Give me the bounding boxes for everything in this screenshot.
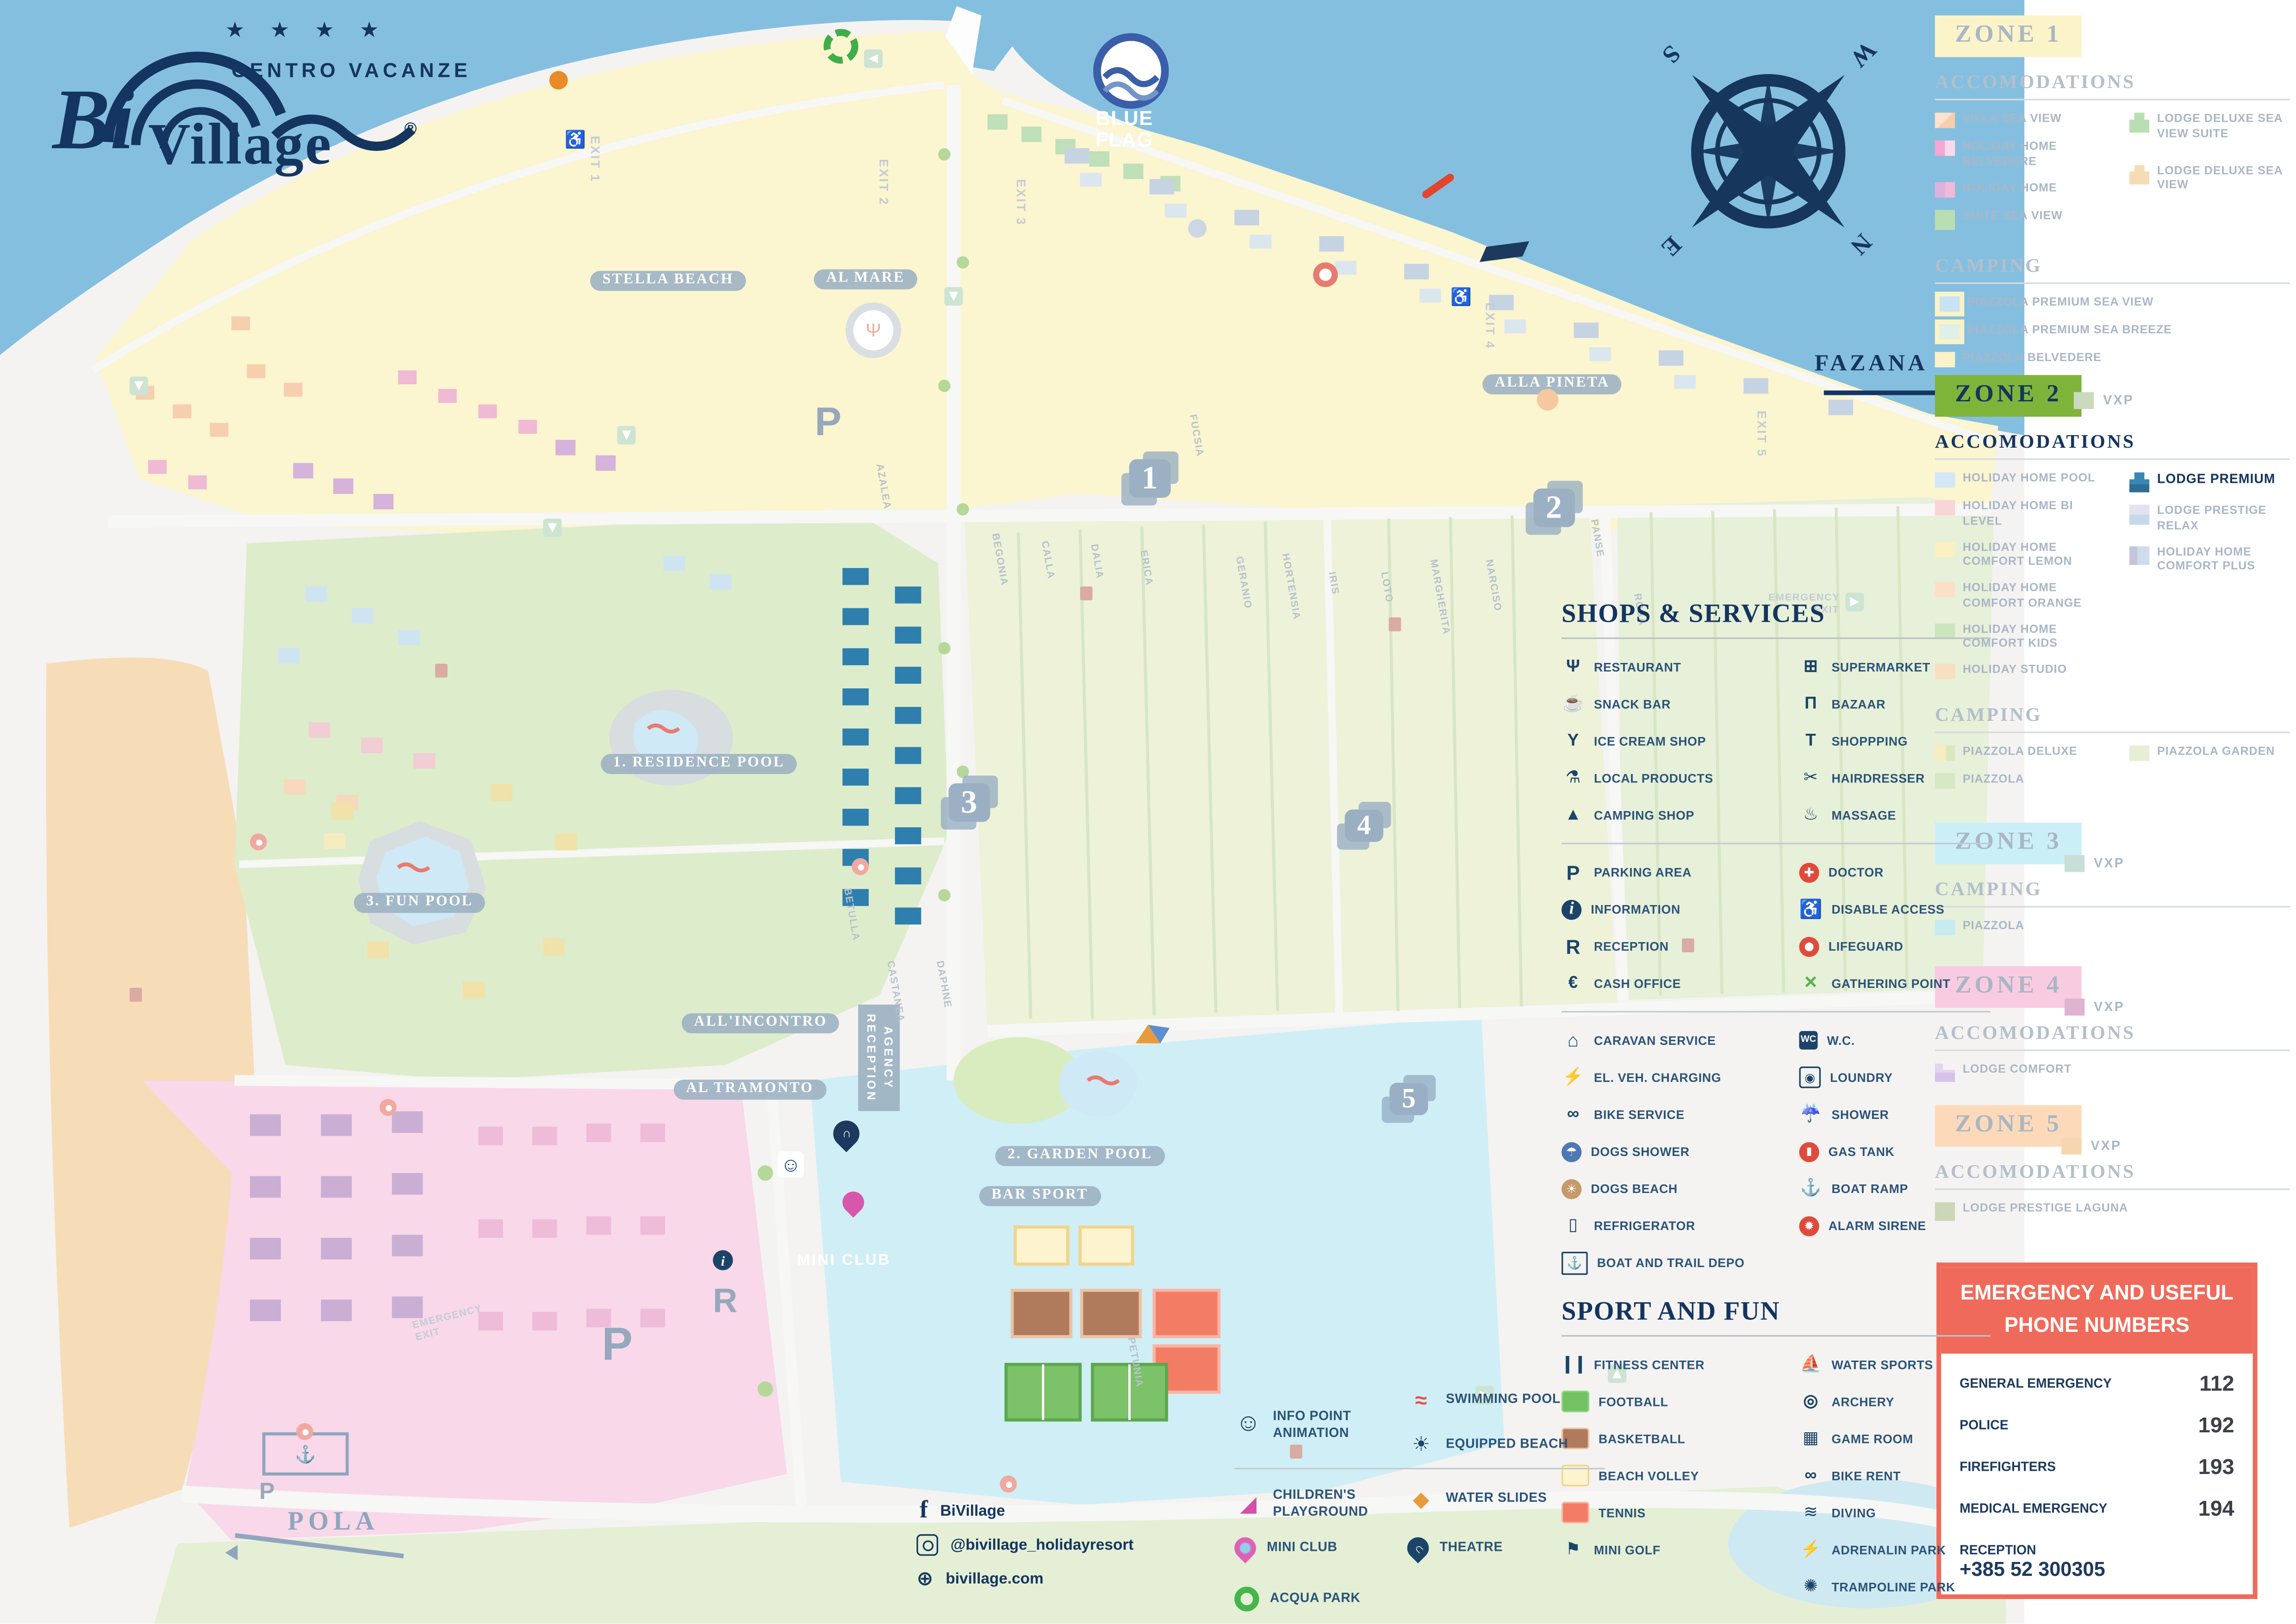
label-garden-pool: 2. GARDEN POOL	[995, 1146, 1165, 1166]
holiday-home-comfort-lemon-swatch	[1935, 541, 1955, 556]
label-al-tramonto: AL TRAMONTO	[674, 1080, 826, 1099]
instagram-handle: @bivillage_holidayresort	[951, 1537, 1134, 1554]
label-agency-reception: AGENCY RECEPTION	[858, 1005, 900, 1112]
holiday-home-bi-level-swatch	[1935, 500, 1955, 515]
blue-flag-label: BLUE FLAG	[1095, 108, 1153, 152]
emergency-row: FIREFIGHTERS193	[1960, 1454, 2234, 1478]
childrens-playground-icon: ◢	[1234, 1491, 1262, 1516]
shower-icon: ☔	[1799, 1104, 1822, 1124]
lodge-deluxe-sea-view-suite-swatch	[2129, 112, 2149, 132]
zone5-vxp: VXP	[2061, 1136, 2122, 1155]
zone4-vxp: VXP	[2065, 997, 2125, 1016]
game-room-icon: ▦	[1799, 1429, 1822, 1449]
fitness-center-icon: ❙❙	[1562, 1355, 1585, 1374]
supermarket-icon: ⊞	[1799, 657, 1822, 677]
zone1-legend: ZONE 1 ACCOMODATIONS VILLA SEA VIEW HOLI…	[1935, 15, 2290, 377]
label-stella-beach: STELLA BEACH	[590, 271, 746, 291]
zone-marker-2: 2	[1533, 488, 1574, 527]
dogs-beach-icon: ☀	[1562, 1179, 1581, 1199]
mini-club-icon	[1230, 1533, 1261, 1563]
alarm-sirene-icon: ✹	[1799, 1216, 1819, 1236]
parking-area-icon: P	[1562, 862, 1585, 882]
fun-item: MINI CLUB	[1234, 1537, 1402, 1559]
emergency-row: MEDICAL EMERGENCY194	[1960, 1495, 2234, 1520]
fun-item: ∩THEATRE	[1407, 1537, 1575, 1559]
vxp-swatch	[2061, 1137, 2081, 1155]
service-item: ☂DOGS SHOWER	[1562, 1141, 1793, 1162]
sport-item: BASKETBALL	[1562, 1428, 1793, 1449]
lifebuoy-icon	[1313, 262, 1338, 287]
bike-rent-icon: ∞	[1799, 1466, 1822, 1486]
holiday-home-pool-swatch	[1935, 472, 1955, 487]
reception-label: RECEPTION	[1960, 1542, 2234, 1557]
label-mini-club: MINI CLUB	[797, 1253, 891, 1270]
piazzola-belvedere-swatch	[1935, 351, 1955, 366]
legend-item: PIAZZOLA PREMIUM SEA VIEW	[1935, 294, 2290, 311]
instagram-row: @bivillage_holidayresort	[916, 1534, 1133, 1556]
label-al-mare: AL MARE	[814, 269, 918, 289]
trampoline-park-icon: ✺	[1799, 1577, 1822, 1597]
website-row: ⊕bivillage.com	[916, 1568, 1043, 1591]
alarm-sirene-icon	[380, 1099, 397, 1116]
information-i-icon: i	[713, 1250, 733, 1270]
theatre-icon: ∩	[1403, 1533, 1433, 1563]
zone1-title: ZONE 1	[1935, 15, 2082, 57]
adrenalin-park-icon: ⚡	[1799, 1540, 1822, 1560]
equipped-beach-icon: ☀	[1407, 1432, 1435, 1457]
sport-fun-title: SPORT AND FUN	[1562, 1297, 1991, 1337]
handicap-parking-icon: ♿	[565, 130, 586, 150]
camping-shop-icon: ▲	[1562, 805, 1585, 825]
fun-item: ☀EQUIPPED BEACH	[1407, 1432, 1582, 1457]
ev-charging-icon: ⚡	[1562, 1067, 1585, 1087]
lifeguard-icon	[1799, 936, 1819, 956]
service-item: ΨRESTAURANT	[1562, 656, 1793, 678]
bike-service-icon: ∞	[1562, 1104, 1585, 1124]
service-item: ▲CAMPING SHOP	[1562, 804, 1793, 826]
legend-item: LODGE PREMIUM	[2129, 471, 2284, 493]
vxp-swatch	[2065, 999, 2084, 1016]
service-item: ♿DISABLE ACCESS	[1799, 898, 1987, 920]
exit-1-label: EXIT 1	[588, 136, 602, 183]
fazana-label: FAZANA	[1815, 352, 1928, 378]
piazzola-premium-sea-view-swatch	[1940, 295, 1960, 311]
exit-arrow-icon	[617, 426, 636, 444]
logo-village: Village	[148, 111, 333, 179]
beach-ball-icon	[1188, 219, 1207, 237]
diving-icon: ≋	[1799, 1503, 1822, 1523]
fun-item: ◆WATER SLIDES	[1407, 1487, 1582, 1511]
fire-extinguisher-icon	[130, 988, 142, 1002]
archery-icon: ◎	[1799, 1392, 1822, 1412]
service-item: ♨MASSAGE	[1799, 804, 1987, 826]
service-item: ∞BIKE SERVICE	[1562, 1104, 1793, 1125]
alarm-sirene-icon	[296, 1423, 313, 1440]
dogs-shower-icon: ☂	[1562, 1141, 1581, 1161]
villa-sea-view-swatch	[1935, 112, 1955, 128]
refrigerator-icon: ▯	[1562, 1216, 1585, 1236]
instagram-icon	[916, 1534, 938, 1556]
facebook-handle: BiVillage	[940, 1503, 1005, 1520]
zone1-accomodations-header: ACCOMODATIONS	[1935, 71, 2290, 100]
legend-item: HOLIDAY HOME BELVEDERE	[1935, 139, 2114, 169]
fire-extinguisher-icon	[1080, 587, 1093, 600]
legend-item: HOLIDAY HOME	[1935, 180, 2114, 197]
water-slides-icon: ◆	[1407, 1487, 1435, 1511]
website-url: bivillage.com	[946, 1571, 1043, 1588]
ice-cream-icon: Y	[1562, 731, 1585, 751]
logo-bi: Bi	[52, 71, 134, 169]
zone3-vxp: VXP	[2065, 854, 2125, 872]
fun-divider	[1234, 1468, 1605, 1469]
holiday-home-swatch	[1935, 181, 1955, 197]
label-bar-sport: BAR SPORT	[979, 1186, 1101, 1206]
zone1-camping-header: CAMPING	[1935, 254, 2290, 283]
facebook-row: fBiVillage	[920, 1497, 1005, 1525]
service-item: ⚗LOCAL PRODUCTS	[1562, 767, 1793, 789]
local-products-icon: ⚗	[1562, 768, 1585, 788]
services-panel: SHOPS & SERVICES ΨRESTAURANT ☕SNACK BAR …	[1562, 599, 1991, 1613]
fun-item: ☺INFO POINT ANIMATION	[1234, 1408, 1409, 1442]
gas-tank-icon: ▮	[1799, 1141, 1819, 1161]
caravan-service-icon: ⌂	[1562, 1030, 1585, 1050]
label-all-incontro: ALL'INCONTRO	[682, 1013, 840, 1033]
service-item: ☔SHOWER	[1799, 1104, 1987, 1125]
beach-wheelchair-icon: ♿	[1450, 287, 1472, 307]
sport-item: ◎ARCHERY	[1799, 1391, 1987, 1412]
legend-item: LODGE DELUXE SEA VIEW	[2129, 163, 2284, 193]
boat-trail-depo-icon: ⚓	[1562, 1252, 1588, 1275]
parking-area-p-pola: P	[259, 1479, 274, 1505]
piazzola-premium-sea-breeze-swatch	[1940, 323, 1960, 338]
alarm-sirene-icon	[1000, 1475, 1017, 1493]
suite-sea-view-swatch	[1935, 209, 1955, 229]
holiday-home-comfort-orange-swatch	[1935, 582, 1955, 597]
sport-item: FOOTBALL	[1562, 1391, 1793, 1412]
info-point-map-icon: ☺	[778, 1151, 804, 1178]
water-sports-icon: ⛵	[1799, 1355, 1822, 1374]
legend-item: HOLIDAY HOME BI LEVEL	[1935, 499, 2114, 529]
service-item: ⌂CARAVAN SERVICE	[1562, 1030, 1793, 1051]
sport-item: ∞BIKE RENT	[1799, 1465, 1987, 1487]
fun-item: ACQUA PARK	[1234, 1587, 1406, 1611]
gathering-point-icon: ✕	[1799, 973, 1822, 993]
logo-stars: ★ ★ ★ ★	[225, 19, 388, 43]
service-item: iINFORMATION	[1562, 898, 1793, 920]
label-fun-pool: 3. FUN POOL	[354, 893, 485, 913]
swimming-pool-icon: ≈	[1407, 1387, 1435, 1412]
service-item: ✕GATHERING POINT	[1799, 972, 1987, 994]
lodge-deluxe-sea-view-swatch	[2129, 164, 2149, 184]
service-item: ⊞SUPERMARKET	[1799, 656, 1987, 678]
legend-item: LODGE DELUXE SEA VIEW SUITE	[2129, 111, 2284, 141]
resort-map-poster: N S E W STELLA BEACH AL MARE ALLA PINETA…	[0, 0, 2296, 1624]
vxp-swatch	[2065, 855, 2084, 872]
exit-arrow-icon	[944, 287, 963, 306]
fire-extinguisher-icon	[1290, 1445, 1302, 1459]
parking-area-p-bottom: P	[602, 1320, 633, 1372]
lodge-prestige-relax-swatch	[2129, 505, 2149, 525]
scooter-rent-icon	[549, 71, 568, 89]
service-item: ✂HAIRDRESSER	[1799, 767, 1987, 789]
cash-office-icon: €	[1562, 973, 1585, 993]
fire-extinguisher-icon	[1389, 618, 1401, 631]
massage-icon: ♨	[1799, 805, 1822, 825]
legend-item: HOLIDAY HOME POOL	[1935, 471, 2114, 488]
sport-item: ≋DIVING	[1799, 1502, 1987, 1524]
hairdresser-icon: ✂	[1799, 768, 1822, 788]
legend-item: PIAZZOLA PREMIUM SEA BREEZE	[1935, 322, 2290, 339]
service-item: ▯REFRIGERATOR	[1562, 1215, 1793, 1237]
snack-bar-icon: ☕	[1562, 694, 1585, 714]
zone2-vxp: VXP	[2074, 391, 2134, 409]
logo-registered: ®	[404, 120, 417, 139]
service-item: WCW.C.	[1799, 1030, 1987, 1051]
service-item: ▮GAS TANK	[1799, 1141, 1987, 1162]
label-residence-pool: 1. RESIDENCE POOL	[601, 754, 797, 774]
lodge-premium-swatch	[2129, 472, 2149, 492]
alarm-sirene-icon	[250, 833, 267, 850]
service-item: ☕SNACK BAR	[1562, 693, 1793, 715]
sport-item: ⚑MINI GOLF	[1562, 1539, 1793, 1561]
sport-item: ⚡ADRENALIN PARK	[1799, 1539, 1987, 1561]
sport-item: ▦GAME ROOM	[1799, 1428, 1987, 1449]
service-item: ◉LOUNDRY	[1799, 1067, 1987, 1088]
zone-marker-3: 3	[949, 783, 989, 822]
al-mare-restaurant-icon: Ψ	[846, 302, 901, 358]
service-item: ✹ALARM SIRENE	[1799, 1215, 1987, 1237]
exit-5-label: EXIT 5	[1755, 411, 1768, 458]
information-icon: i	[1562, 899, 1581, 919]
boat-ramp-icon: ⚓	[1799, 1179, 1822, 1199]
legend-item: VILLA SEA VIEW	[1935, 111, 2114, 128]
exit-2-label: EXIT 2	[877, 159, 890, 206]
legend-item: LODGE PRESTIGE RELAX	[2129, 503, 2284, 533]
reception-icon: R	[1562, 936, 1585, 956]
sport-item: TENNIS	[1562, 1502, 1793, 1524]
blue-flag-icon	[1097, 37, 1165, 105]
restaurant-icon: Ψ	[1562, 657, 1585, 677]
fun-pool	[358, 821, 486, 945]
piazzola-garden-swatch	[2129, 745, 2149, 761]
zone2-title: ZONE 2	[1935, 375, 2082, 417]
service-item: RRECEPTION	[1562, 935, 1793, 957]
facebook-icon: f	[920, 1497, 928, 1525]
info-point-animation-icon: ☺	[1234, 1412, 1262, 1437]
emergency-row: GENERAL EMERGENCY112	[1960, 1370, 2234, 1395]
service-item: ☀DOGS BEACH	[1562, 1178, 1793, 1199]
legend-item: HOLIDAY HOME COMFORT LEMON	[1935, 539, 2114, 569]
holiday-home-belvedere-swatch	[1935, 140, 1955, 156]
service-item: ✚DOCTOR	[1799, 861, 1987, 883]
legend-item: HOLIDAY HOME COMFORT PLUS	[2129, 544, 2284, 574]
service-item: €CASH OFFICE	[1562, 972, 1793, 994]
service-item: TSHOPPPING	[1799, 730, 1987, 752]
disable-access-icon: ♿	[1799, 899, 1822, 919]
exit-4-label: EXIT 4	[1483, 302, 1497, 350]
fun-item: ≈SWIMMING POOL	[1407, 1387, 1582, 1412]
globe-icon: ⊕	[916, 1568, 933, 1591]
alarm-sirene-icon	[852, 858, 869, 875]
bazaar-icon: Π	[1799, 694, 1822, 714]
zone-marker-4: 4	[1345, 810, 1383, 842]
service-item: ⚡EL. VEH. CHARGING	[1562, 1067, 1793, 1088]
pola-arrowhead	[225, 1545, 238, 1560]
zone-marker-1: 1	[1129, 459, 1170, 498]
service-item: LIFEGUARD	[1799, 935, 1987, 957]
logo-subtitle: CENTRO VACANZE	[231, 59, 471, 82]
sport-item: ✺TRAMPOLINE PARK	[1799, 1576, 1987, 1598]
service-item: YICE CREAM SHOP	[1562, 730, 1793, 752]
sport-item: ⛵WATER SPORTS	[1799, 1354, 1987, 1375]
legend-item: SUITE SEA VIEW	[1935, 207, 2114, 229]
reception-phone: +385 52 300305	[1960, 1557, 2234, 1580]
exit-arrow-icon	[130, 376, 148, 395]
vxp-swatch	[2074, 392, 2094, 409]
exit-3-label: EXIT 3	[1014, 179, 1027, 226]
sport-item: ❙❙FITNESS CENTER	[1562, 1354, 1793, 1375]
doctor-icon: ✚	[1799, 862, 1819, 882]
zone2-accomodations-header: ACCOMODATIONS	[1935, 431, 2290, 460]
shopping-icon: T	[1799, 731, 1822, 751]
service-item: PPARKING AREA	[1562, 861, 1793, 883]
legend-item: PIAZZOLA GARDEN	[2129, 744, 2284, 761]
fire-extinguisher-icon	[435, 664, 448, 678]
zone-marker-5: 5	[1389, 1083, 1428, 1115]
exit-arrow-icon	[543, 518, 562, 537]
fun-item: ◢CHILDREN'S PLAYGROUND	[1234, 1487, 1409, 1521]
shops-services-title: SHOPS & SERVICES	[1562, 599, 1991, 639]
service-item: ⚓BOAT RAMP	[1799, 1178, 1987, 1199]
emergency-row: POLICE192	[1960, 1412, 2234, 1437]
parking-area-p-top: P	[815, 398, 841, 446]
acqua-park-icon	[1234, 1587, 1259, 1611]
wc-icon: WC	[1799, 1031, 1817, 1049]
pola-label: POLA	[287, 1506, 379, 1537]
alla-pineta-icecream-icon	[1537, 389, 1559, 411]
service-item: ΠBAZAAR	[1799, 693, 1987, 715]
service-item: ⚓BOAT AND TRAIL DEPO	[1562, 1252, 1793, 1275]
laundry-icon: ◉	[1799, 1067, 1821, 1088]
exit-arrow-icon	[864, 50, 883, 68]
holiday-home-comfort-plus-swatch	[2129, 546, 2149, 564]
reception-r: R	[713, 1281, 737, 1321]
legend-item: PIAZZOLA BELVEDERE	[1935, 350, 2290, 367]
